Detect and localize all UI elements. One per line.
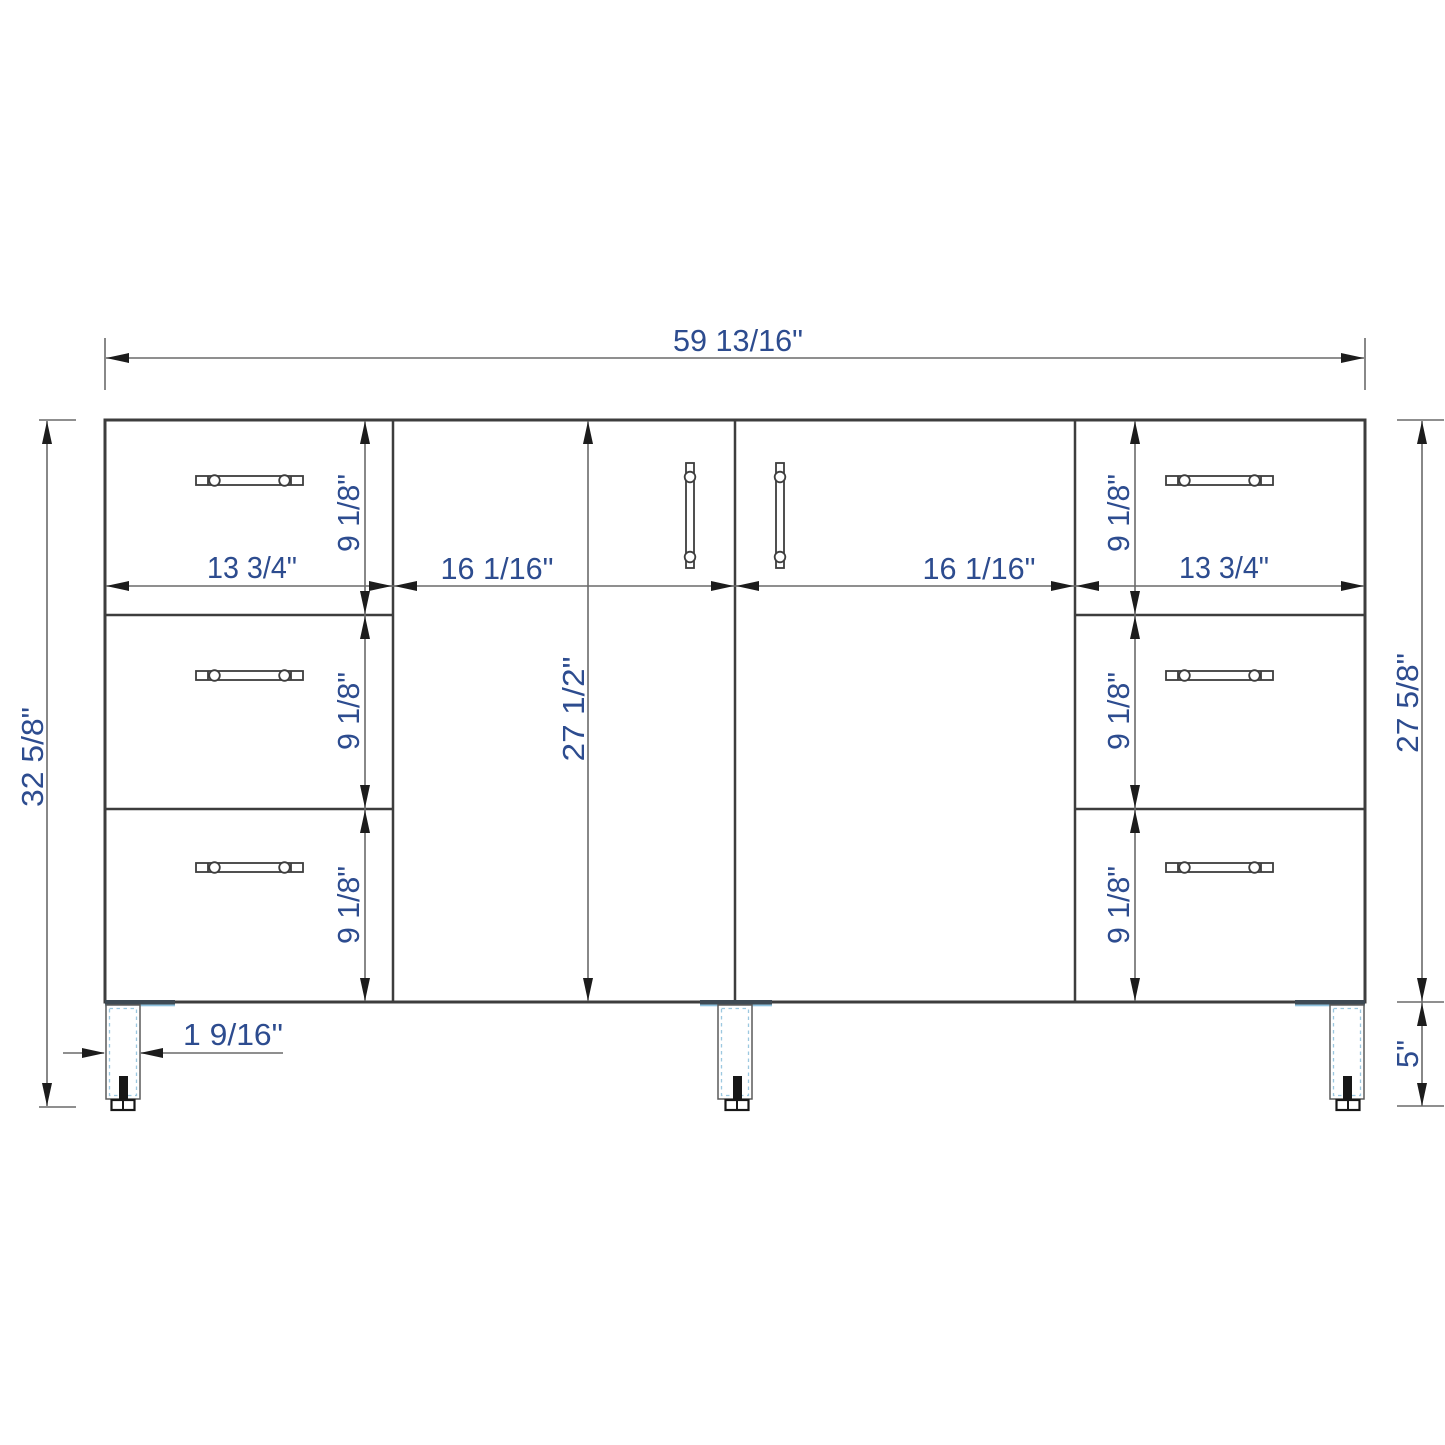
overall-width-label: 59 13/16" (673, 323, 803, 358)
legs (105, 1000, 1365, 1110)
overall-height-label: 32 5/8" (15, 707, 50, 807)
dim-overall-height: 32 5/8" (15, 420, 76, 1107)
dim-arrow (1341, 353, 1364, 363)
right-door-width-label: 16 1/16" (923, 551, 1036, 586)
left-drawer-width-label: 13 3/4" (207, 550, 297, 585)
dim-arrow (1130, 810, 1140, 833)
dim-arrow (140, 1048, 163, 1058)
dim-arrow (1417, 978, 1427, 1001)
dim-arrow (360, 616, 370, 639)
dim-arrow (1076, 581, 1099, 591)
leg-width-label: 1 9/16" (183, 1017, 283, 1052)
dim-arrow (1130, 978, 1140, 1001)
door-handle (685, 463, 696, 568)
dimension-drawing: 59 13/16" 13 3/4" 16 1/16" 16 1/16" 13 3… (0, 0, 1445, 1445)
dim-arrow (583, 421, 593, 444)
door-height-label: 27 1/2" (556, 657, 591, 762)
dim-body-and-leg-height: 27 5/8" 5" (1390, 420, 1444, 1106)
right-drawer-handles (1166, 475, 1273, 873)
dim-arrow (1341, 581, 1364, 591)
dim-arrow (82, 1048, 105, 1058)
dim-arrow (360, 978, 370, 1001)
dim-door-height: 27 1/2" (556, 421, 593, 1001)
leveler-bolt (119, 1076, 128, 1101)
drawer-height-label: 9 1/8" (331, 474, 366, 552)
dim-arrow (360, 785, 370, 808)
leg-height-label: 5" (1390, 1040, 1425, 1068)
drawer-handle (1166, 670, 1273, 681)
dim-arrow (736, 581, 759, 591)
dim-arrow (106, 581, 129, 591)
dim-arrow (42, 421, 52, 444)
dim-drawer-heights-left: 9 1/8" 9 1/8" 9 1/8" (331, 421, 370, 1001)
dim-overall-width: 59 13/16" (105, 323, 1365, 390)
dim-arrow (1417, 1083, 1427, 1106)
dim-drawer-heights-right: 9 1/8" 9 1/8" 9 1/8" (1101, 421, 1140, 1001)
dim-arrow (360, 421, 370, 444)
left-drawer-handles (196, 475, 303, 873)
dim-arrow (1051, 581, 1074, 591)
dim-arrow (106, 353, 129, 363)
left-door-width-label: 16 1/16" (441, 551, 554, 586)
dim-arrow (1417, 421, 1427, 444)
leveler-bolt (733, 1076, 742, 1101)
center-leg (700, 1000, 772, 1110)
door-handle (775, 463, 786, 568)
dim-arrow (1130, 616, 1140, 639)
left-leg (105, 1000, 175, 1110)
dim-arrow (1130, 785, 1140, 808)
dim-arrow (42, 1083, 52, 1106)
drawer-height-label: 9 1/8" (1101, 866, 1136, 944)
dim-leg-width: 1 9/16" (63, 1017, 283, 1058)
drawer-handle (196, 670, 303, 681)
drawer-handle (1166, 475, 1273, 486)
dim-arrow (360, 810, 370, 833)
dim-arrow (711, 581, 734, 591)
dim-arrow (1130, 421, 1140, 444)
body-height-label: 27 5/8" (1390, 653, 1425, 753)
dim-arrow (583, 978, 593, 1001)
right-leg (1295, 1000, 1365, 1110)
vanity-dimension-svg: 59 13/16" 13 3/4" 16 1/16" 16 1/16" 13 3… (0, 0, 1445, 1445)
drawer-handle (1166, 862, 1273, 873)
drawer-height-label: 9 1/8" (1101, 672, 1136, 750)
dim-arrow (394, 581, 417, 591)
right-drawer-width-label: 13 3/4" (1179, 550, 1269, 585)
dim-arrow (369, 581, 392, 591)
drawer-height-label: 9 1/8" (1101, 474, 1136, 552)
cabinet-outline (105, 420, 1365, 1002)
drawer-handle (196, 475, 303, 486)
drawer-handle (196, 862, 303, 873)
dim-arrow (1417, 1003, 1427, 1026)
drawer-height-label: 9 1/8" (331, 866, 366, 944)
dim-arrow (1130, 591, 1140, 614)
dim-arrow (360, 591, 370, 614)
drawer-height-label: 9 1/8" (331, 672, 366, 750)
leveler-bolt (1343, 1076, 1352, 1101)
